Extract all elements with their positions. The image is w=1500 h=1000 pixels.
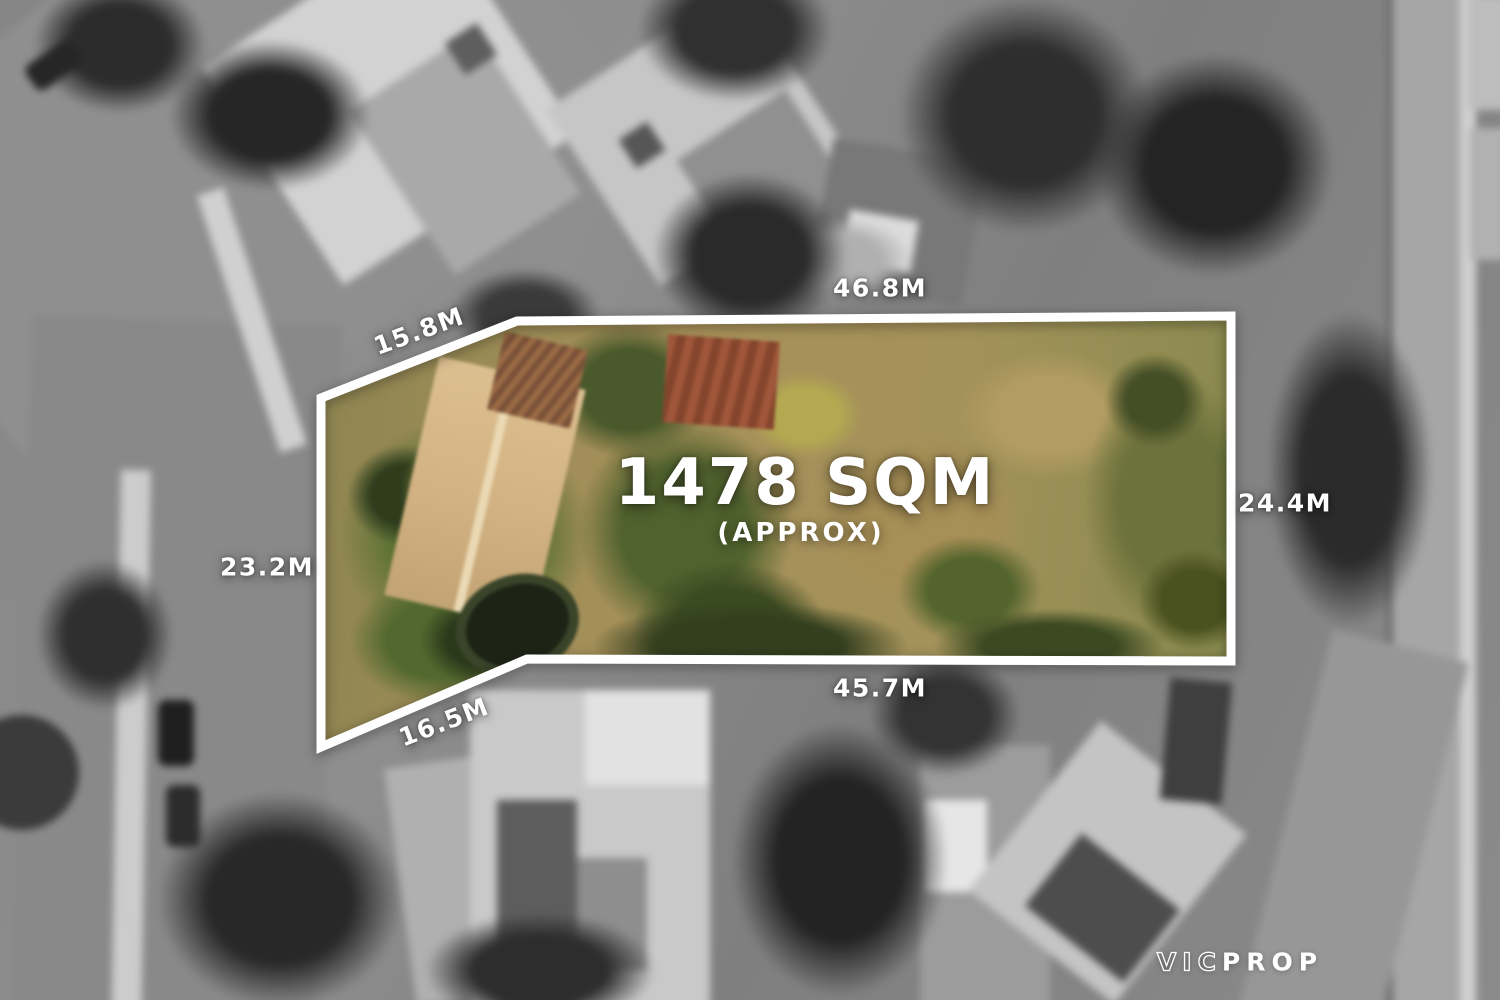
measurement-top: 46.8M [833,274,927,303]
measurement-left: 23.2M [220,553,314,582]
logo-vic-outline: VIC [1157,948,1222,977]
listing-aerial-image: 46.8M 15.8M 24.4M 23.2M 45.7M 16.5M 1478… [0,0,1500,1000]
vicprop-logo: VICPROP [1157,948,1323,977]
measurement-right: 24.4M [1238,489,1332,518]
logo-prop-solid: PROP [1222,948,1323,977]
lot-area-label: 1478 SQM [615,446,996,520]
measurement-bottom: 45.7M [833,674,927,703]
lot-area-qualifier: (APPROX) [717,518,884,548]
